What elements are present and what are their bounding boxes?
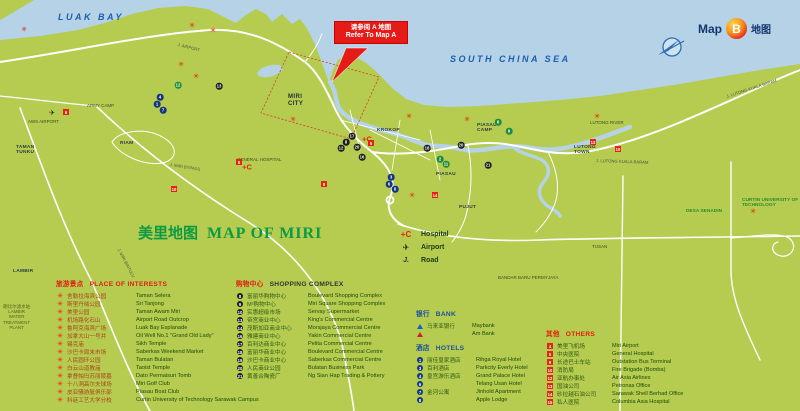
bank-legend-item: Am Bank	[416, 330, 495, 338]
poi-legend-item: ✳ 加拿大山一号井 Oil Well No.1 "Grand Old Lady"	[56, 332, 259, 340]
legend-bank: 银行 BANK 马来亚银行 Maybank Am Bank	[416, 308, 495, 338]
shopping-item-zh: 富丽华商业中心	[247, 348, 305, 356]
legend-shopping-complex: 购物中心 SHOPPING COMPLEX 8 富丽华购物中心 Boulevar…	[236, 278, 385, 380]
poi-item-zh: 机场路化石山	[67, 316, 133, 324]
poi-item-zh: 皮亚骚游艇俱乐部	[67, 388, 133, 396]
shopping-item-en: King's Commercial Centre	[308, 317, 373, 323]
poi-item-en: Taman Awam Miri	[136, 309, 180, 315]
poi-item-zh: 斯里丹绒公园	[67, 300, 133, 308]
poi-item-zh: 美里公园	[67, 308, 133, 316]
others-item-zh: 长途巴士车站	[557, 358, 609, 366]
other-number-icon: 5	[547, 351, 553, 357]
hotel-item-en: Parkcity Everly Hotel	[476, 365, 528, 371]
poi-item-zh: 舍勒拉海滨公园	[67, 292, 133, 300]
shopping-item-zh: M²购物中心	[247, 300, 305, 308]
shopping-item-zh: 黄善合陶瓷厂	[247, 372, 305, 380]
other-number-icon: 14	[547, 391, 553, 397]
shop-number-icon: 9	[237, 301, 244, 308]
hotel-item-en: Rihga Royal Hotel	[476, 357, 521, 363]
shopping-item-en: Saberkas Commercial Centre	[308, 357, 381, 363]
hotel-legend-item: 6 Telang Usan Hotel	[416, 380, 528, 388]
others-item-zh: 中央医院	[557, 350, 609, 358]
others-title-zh: 其他	[546, 328, 560, 338]
badge-map-word: Map	[698, 22, 722, 36]
flower-icon: ✳	[56, 389, 64, 396]
others-item-zh: 亚航办事处	[557, 374, 609, 382]
map-b-circle-icon: B	[726, 18, 747, 39]
poi-item-zh: 锡克庙	[67, 340, 133, 348]
shop-number-icon: 21	[237, 373, 244, 380]
shopping-legend-item: 8 富丽华购物中心 Boulevard Shopping Complex	[236, 292, 385, 300]
bank-legend-item: 马来亚银行 Maybank	[416, 322, 495, 330]
bank-logo-icon	[417, 324, 423, 329]
others-legend-item: 13 国油公司 Petronas Office	[546, 382, 683, 390]
hotel-number-icon: 3	[417, 365, 424, 372]
poi-legend-item: ✳ 美里公园 Taman Awam Miri	[56, 308, 259, 316]
poi-item-zh: 拿督帕玛苏丽陵墓	[67, 372, 133, 380]
others-item-en: Fire Brigade (Bomba)	[612, 367, 665, 373]
shopping-item-en: Ng Sian Hap Trading & Pottery	[308, 373, 385, 379]
shopping-item-en: Yakin Commercial Centre	[308, 333, 371, 339]
flower-icon: ✳	[56, 373, 64, 380]
miri-map-page: LUAK BAYSOUTH CHINA SEAMIRI CITYKROKOPPI…	[0, 0, 800, 411]
others-legend-item: 15 私人医院 Columbia Asia Hospital	[546, 398, 683, 406]
poi-title-en: PLACE OF INTERESTS	[90, 281, 168, 288]
legend-others: 其他 OTHERS 4 美里飞机场 Miri Airport 5 中央医院 Ge…	[546, 328, 683, 406]
poi-item-en: Dato Permaisuri Tomb	[136, 373, 191, 379]
poi-item-zh: 白云山道教庙	[67, 364, 133, 372]
poi-legend-item: ✳ 白云山道教庙 Taoist Temple	[56, 364, 259, 372]
shopping-legend-item: 17 百利达商业中心 Pelita Commercial Centre	[236, 340, 385, 348]
flower-icon: ✳	[56, 365, 64, 372]
others-item-zh: 消防局	[557, 366, 609, 374]
shopping-item-zh: 人民商业公园	[247, 364, 305, 372]
hotel-legend-item: 3 百利酒店 Parkcity Everly Hotel	[416, 364, 528, 372]
others-legend-item: 9 长途巴士车站 Outstation Bus Terminal	[546, 358, 683, 366]
legend-symbol-label: Road	[421, 257, 439, 264]
flower-icon: ✳	[56, 397, 64, 404]
hotel-legend-item: 1 丽佳皇家酒店 Rihga Royal Hotel	[416, 356, 528, 364]
poi-legend-item: ✳ 拿督帕玛苏丽陵墓 Dato Permaisuri Tomb	[56, 372, 259, 380]
poi-item-zh: 科廷工艺大学分校	[67, 396, 133, 404]
flower-icon: ✳	[56, 317, 64, 324]
shop-number-icon: 18	[237, 349, 244, 356]
hotels-title-en: HOTELS	[436, 345, 465, 352]
poi-item-zh: 十八洞高尔夫球场	[67, 380, 133, 388]
others-item-en: Miri Airport	[612, 343, 639, 349]
poi-legend-item: ✳ 科廷工艺大学分校 Curtin University of Technolo…	[56, 396, 259, 404]
shopping-title-en: SHOPPING COMPLEX	[270, 281, 344, 288]
flower-icon: ✳	[56, 381, 64, 388]
shop-number-icon: 13	[237, 317, 244, 324]
legend-hotels: 酒店 HOTELS 1 丽佳皇家酒店 Rihga Royal Hotel 3 百…	[416, 342, 528, 404]
hotel-number-icon: 4	[417, 373, 424, 380]
others-legend-item: 12 亚航办事处 Air Asia Airlines	[546, 374, 683, 382]
poi-legend-item: ✳ 机场路化石山 Airport Road Outcrop	[56, 316, 259, 324]
poi-item-zh: 鲁阿克海滨广场	[67, 324, 133, 332]
others-item-en: Air Asia Airlines	[612, 375, 651, 381]
shopping-item-zh: 沙巴卡商业中心	[247, 356, 305, 364]
hotel-legend-item: 7 金河公寓 Jinhold Apartment	[416, 388, 528, 396]
shopping-legend-item: 14 茂斯加亚商业中心 Morsjaya Commercial Centre	[236, 324, 385, 332]
bank-title-en: BANK	[436, 311, 456, 318]
other-number-icon: 12	[547, 375, 553, 381]
callout-text-en: Refer To Map A	[336, 32, 406, 41]
shopping-legend-item: 16 雅建商业中心 Yakin Commercial Centre	[236, 332, 385, 340]
flower-icon: ✳	[56, 301, 64, 308]
others-legend-item: 5 中央医院 General Hospital	[546, 350, 683, 358]
legend-place-of-interests: 旅游景点 PLACE OF INTERESTS ✳ 舍勒拉海滨公园 Taman …	[56, 278, 259, 404]
poi-item-en: Luak Bay Esplanade	[136, 325, 187, 331]
hotels-title-zh: 酒店	[416, 342, 430, 352]
flower-icon: ✳	[56, 349, 64, 356]
poi-item-zh: 人民圆环公园	[67, 356, 133, 364]
shop-number-icon: 20	[237, 365, 244, 372]
poi-legend-item: ✳ 锡克庙 Sikh Temple	[56, 340, 259, 348]
other-number-icon: 4	[547, 343, 553, 349]
poi-item-en: Sri Tanjong	[136, 301, 164, 307]
legend-symbol-icon: ✈	[398, 243, 414, 252]
poi-item-en: Curtin University of Technology Sarawak …	[136, 397, 259, 403]
poi-item-en: Saberkas Weekend Market	[136, 349, 203, 355]
other-number-icon: 10	[547, 367, 553, 373]
poi-item-en: Taoist Temple	[136, 365, 170, 371]
map-b-badge: Map B 地图	[698, 18, 771, 39]
legend-symbol-label: Hospital	[421, 231, 449, 238]
shopping-title-zh: 购物中心	[236, 278, 264, 288]
poi-item-zh: 沙巴卡周末市场	[67, 348, 133, 356]
flower-icon: ✳	[56, 357, 64, 364]
page-title: 美里地图 MAP OF MIRI	[138, 222, 322, 243]
shop-number-icon: 14	[237, 325, 244, 332]
poi-item-zh: 加拿大山一号井	[67, 332, 133, 340]
shopping-legend-item: 18 富丽华商业中心 Boulevard Commercial Centre	[236, 348, 385, 356]
shop-number-icon: 8	[237, 293, 244, 300]
poi-item-en: Taman Selera	[136, 293, 171, 299]
others-title-en: OTHERS	[566, 331, 595, 338]
others-item-en: Outstation Bus Terminal	[612, 359, 671, 365]
shop-number-icon: 16	[237, 333, 244, 340]
poi-item-en: Airport Road Outcrop	[136, 317, 189, 323]
poi-legend-item: ✳ 沙巴卡周末市场 Saberkas Weekend Market	[56, 348, 259, 356]
others-item-zh: 砂拉越石油公司	[557, 390, 609, 398]
poi-title-zh: 旅游景点	[56, 278, 84, 288]
shopping-item-en: Bulatan Business Park	[308, 365, 364, 371]
hotel-number-icon: 1	[417, 357, 424, 364]
shopping-legend-item: 13 帝宫商业中心 King's Commercial Centre	[236, 316, 385, 324]
poi-legend-item: ✳ 鲁阿克海滨广场 Luak Bay Esplanade	[56, 324, 259, 332]
title-zh: 美里地图	[138, 222, 198, 243]
others-item-en: Sarawak Shell Berhad Office	[612, 391, 683, 397]
shopping-item-en: Miri Square Shopping Complex	[308, 301, 385, 307]
legend-symbol-icon: +C	[398, 230, 414, 239]
flower-icon: ✳	[56, 333, 64, 340]
hotel-item-zh: 皇宫游乐酒店	[427, 372, 473, 380]
other-number-icon: 9	[547, 359, 553, 365]
hotel-item-en: Telang Usan Hotel	[476, 381, 522, 387]
poi-legend-item: ✳ 皮亚骚游艇俱乐部 Piasau Boat Club	[56, 388, 259, 396]
others-legend-item: 14 砂拉越石油公司 Sarawak Shell Berhad Office	[546, 390, 683, 398]
poi-item-en: Oil Well No.1 "Grand Old Lady"	[136, 333, 214, 339]
poi-legend-item: ✳ 舍勒拉海滨公园 Taman Selera	[56, 292, 259, 300]
shopping-item-zh: 雅建商业中心	[247, 332, 305, 340]
shopping-item-zh: 实惠超级市场	[247, 308, 305, 316]
hotel-item-zh: 金河公寓	[427, 388, 473, 396]
flower-icon: ✳	[56, 341, 64, 348]
others-item-zh: 国油公司	[557, 382, 609, 390]
hotel-item-en: Apple Lodge	[476, 397, 507, 403]
flower-icon: ✳	[56, 293, 64, 300]
poi-item-en: Sikh Temple	[136, 341, 166, 347]
shopping-item-en: Boulevard Shopping Complex	[308, 293, 382, 299]
legend-symbol-row: J. Road	[398, 254, 449, 267]
bank-item-en: Maybank	[472, 323, 495, 329]
shop-number-icon: 19	[237, 357, 244, 364]
hotel-legend-item: 8 Apple Lodge	[416, 396, 528, 404]
badge-zh: 地图	[751, 21, 771, 36]
others-legend-item: 4 美里飞机场 Miri Airport	[546, 342, 683, 350]
shopping-legend-item: 21 黄善合陶瓷厂 Ng Sian Hap Trading & Pottery	[236, 372, 385, 380]
poi-legend-item: ✳ 斯里丹绒公园 Sri Tanjong	[56, 300, 259, 308]
shopping-item-en: Pelita Commercial Centre	[308, 341, 372, 347]
others-item-en: General Hospital	[612, 351, 654, 357]
hotel-legend-item: 4 皇宫游乐酒店 Grand Palace Hotel	[416, 372, 528, 380]
shopping-item-en: Morsjaya Commercial Centre	[308, 325, 380, 331]
others-legend-item: 10 消防局 Fire Brigade (Bomba)	[546, 366, 683, 374]
others-item-en: Petronas Office	[612, 383, 650, 389]
poi-item-en: Miri Golf Club	[136, 381, 170, 387]
legend-symbol-label: Airport	[421, 244, 444, 251]
shopping-legend-item: 10 实惠超级市场 Servay Supermarket	[236, 308, 385, 316]
shopping-legend-item: 20 人民商业公园 Bulatan Business Park	[236, 364, 385, 372]
others-item-zh: 美里飞机场	[557, 342, 609, 350]
legend-symbols: +C Hospital ✈ Airport J. Road	[398, 228, 449, 267]
shop-number-icon: 17	[237, 341, 244, 348]
callout-text-zh: 请参阅 A 地图	[336, 24, 406, 32]
other-number-icon: 15	[547, 399, 553, 405]
shopping-item-zh: 富丽华购物中心	[247, 292, 305, 300]
shopping-item-zh: 帝宫商业中心	[247, 316, 305, 324]
poi-legend-item: ✳ 人民圆环公园 Taman Bulatan	[56, 356, 259, 364]
hotel-item-en: Grand Palace Hotel	[476, 373, 525, 379]
bank-logo-icon	[417, 332, 423, 337]
shopping-item-en: Servay Supermarket	[308, 309, 359, 315]
legend-symbol-row: +C Hospital	[398, 228, 449, 241]
other-number-icon: 13	[547, 383, 553, 389]
hotel-item-zh: 百利酒店	[427, 364, 473, 372]
others-item-zh: 私人医院	[557, 398, 609, 406]
hotel-item-en: Jinhold Apartment	[476, 389, 521, 395]
shopping-legend-item: 9 M²购物中心 Miri Square Shopping Complex	[236, 300, 385, 308]
bank-item-zh: 马来亚银行	[427, 322, 469, 330]
hotel-number-icon: 6	[417, 381, 424, 388]
title-en: MAP OF MIRI	[207, 225, 322, 243]
legend-symbol-icon: J.	[398, 257, 414, 264]
refer-to-map-a-callout: 请参阅 A 地图 Refer To Map A	[334, 21, 408, 44]
flower-icon: ✳	[56, 325, 64, 332]
flower-icon: ✳	[56, 309, 64, 316]
shopping-item-zh: 茂斯加亚商业中心	[247, 324, 305, 332]
poi-legend-item: ✳ 十八洞高尔夫球场 Miri Golf Club	[56, 380, 259, 388]
others-item-en: Columbia Asia Hospital	[612, 399, 670, 405]
poi-item-en: Taman Bulatan	[136, 357, 173, 363]
bank-item-en: Am Bank	[472, 331, 495, 337]
bank-title-zh: 银行	[416, 308, 430, 318]
hotel-number-icon: 7	[417, 389, 424, 396]
shopping-legend-item: 19 沙巴卡商业中心 Saberkas Commercial Centre	[236, 356, 385, 364]
legend-symbol-row: ✈ Airport	[398, 241, 449, 254]
shopping-item-zh: 百利达商业中心	[247, 340, 305, 348]
shop-number-icon: 10	[237, 309, 244, 316]
hotel-item-zh: 丽佳皇家酒店	[427, 356, 473, 364]
poi-item-en: Piasau Boat Club	[136, 389, 179, 395]
shopping-item-en: Boulevard Commercial Centre	[308, 349, 383, 355]
hotel-number-icon: 8	[417, 397, 424, 404]
